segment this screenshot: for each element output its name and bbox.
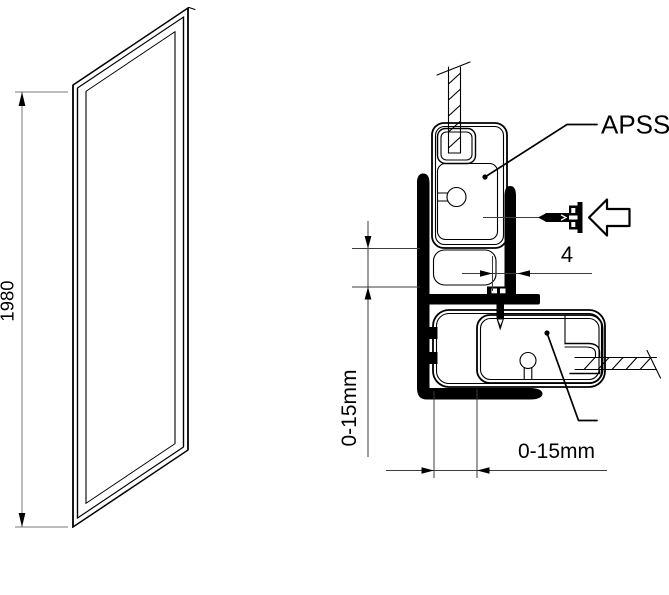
bracket-vertical-bar	[505, 186, 517, 300]
profile-outer	[432, 123, 507, 248]
glass-hatching	[584, 358, 651, 370]
screw-side-icon	[538, 202, 583, 233]
break-line	[437, 62, 470, 75]
glass-channel-lower	[570, 370, 600, 374]
horizontal-adjustment-label: 0-15mm	[518, 440, 595, 463]
break-line	[647, 351, 661, 379]
telescoping-extension	[434, 250, 497, 285]
vertical-adjustment-dimension: 0-15mm	[338, 221, 420, 457]
horizontal-adjustment-dimension: 0-15mm	[386, 389, 607, 478]
glass-channel-upper-inner	[565, 347, 596, 357]
height-dimension: 1980	[0, 92, 68, 527]
panel-frame-middle	[78, 17, 184, 518]
profile-outer	[433, 310, 605, 387]
insert-direction-arrow-icon	[589, 200, 630, 236]
height-dimension-label: 1980	[0, 280, 18, 321]
arrow-left-icon	[477, 467, 490, 474]
fixing-clip	[487, 287, 510, 296]
arrow-right-icon	[480, 270, 493, 277]
apss-leader-line	[485, 125, 597, 178]
arrow-down-icon	[19, 513, 26, 527]
arrow-up-icon	[365, 287, 372, 300]
screw-hole	[447, 188, 466, 207]
keyhole	[520, 353, 536, 380]
sliding-insert-inner-line	[481, 319, 600, 380]
apss-profile-upper-section	[432, 123, 507, 285]
bracket-horizontal-bar	[417, 294, 540, 305]
panel-frame-inner	[86, 32, 175, 504]
side-panel-view: 1980	[0, 8, 195, 528]
profile-section-view: APSS 4	[338, 62, 669, 478]
glass-section-vertical	[437, 62, 470, 153]
technical-drawing: 1980	[0, 0, 669, 595]
arrow-left-icon	[518, 270, 531, 277]
arrow-right-icon	[422, 467, 435, 474]
glass-panel	[73, 8, 188, 527]
gap-dimension-label: 4	[561, 242, 573, 267]
glass-clamp-channel-inner	[441, 132, 472, 160]
lower-leader-line	[547, 333, 597, 421]
apss-profile-lower-section	[433, 310, 605, 387]
gap-dimension: 4	[462, 242, 592, 291]
glass-hatching	[449, 73, 461, 148]
vertical-adjustment-label: 0-15mm	[338, 369, 361, 446]
apss-label: APSS	[601, 110, 669, 140]
screw-down-icon	[497, 295, 505, 331]
corner-tick	[189, 8, 195, 10]
arrow-up-icon	[19, 92, 26, 106]
panel-frame-outer	[73, 8, 188, 527]
profile-inner	[436, 127, 504, 245]
arrow-down-icon	[365, 236, 372, 249]
